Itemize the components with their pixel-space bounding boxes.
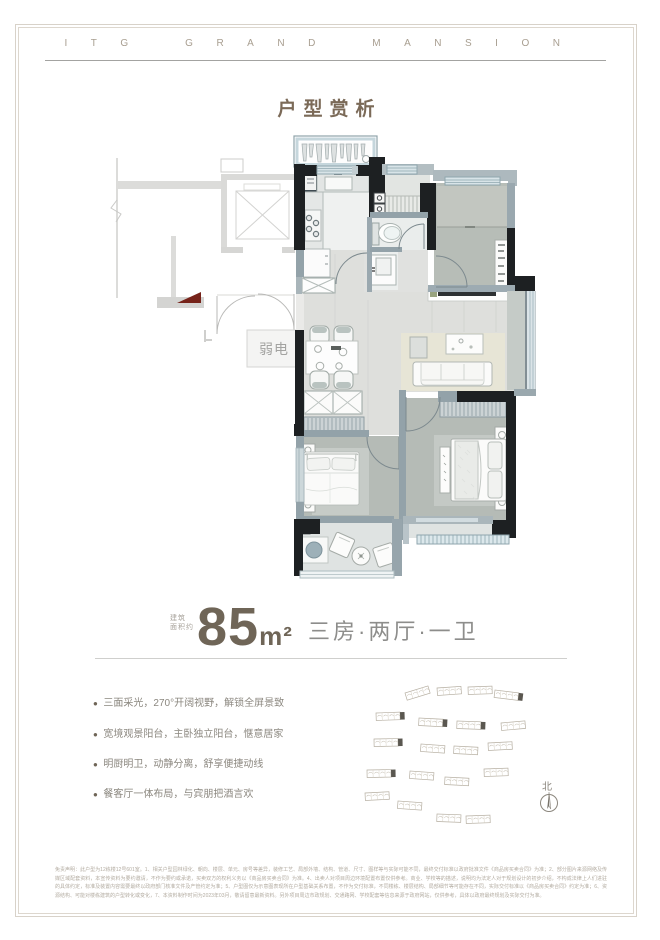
svg-text:北: 北 bbox=[542, 781, 552, 793]
svg-text:弱电: 弱电 bbox=[259, 341, 289, 357]
